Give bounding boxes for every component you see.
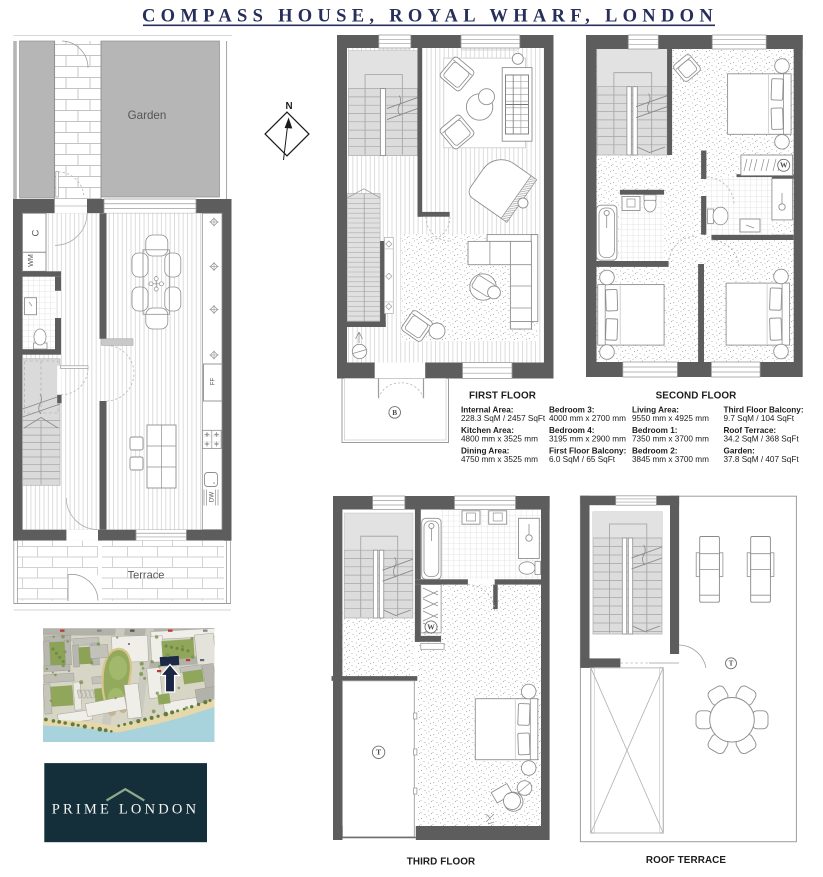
svg-text:First Floor Balcony:: First Floor Balcony:: [549, 446, 626, 455]
svg-text:37.8 SqM / 407 SqFt: 37.8 SqM / 407 SqFt: [724, 455, 800, 464]
svg-text:T: T: [376, 748, 382, 757]
svg-text:4800 mm x 3525 mm: 4800 mm x 3525 mm: [461, 435, 538, 444]
svg-text:N: N: [285, 101, 292, 112]
svg-text:3845 mm x 3700 mm: 3845 mm x 3700 mm: [632, 455, 709, 464]
svg-text:Garden: Garden: [128, 109, 167, 122]
svg-text:7350 mm x 3700 mm: 7350 mm x 3700 mm: [632, 435, 709, 444]
svg-text:C: C: [31, 229, 42, 236]
svg-text:Bedroom 2:: Bedroom 2:: [632, 446, 678, 455]
svg-text:W: W: [427, 622, 435, 631]
svg-text:Internal Area:: Internal Area:: [461, 405, 513, 414]
svg-text:Roof Terrace:: Roof Terrace:: [724, 426, 777, 435]
svg-text:9.7 SqM / 104 SqFt: 9.7 SqM / 104 SqFt: [724, 414, 795, 423]
svg-text:Garden:: Garden:: [724, 446, 755, 455]
svg-text:WM: WM: [26, 254, 35, 267]
svg-text:Living Area:: Living Area:: [632, 405, 679, 414]
svg-text:Terrace: Terrace: [128, 570, 165, 582]
svg-text:THIRD FLOOR: THIRD FLOOR: [407, 856, 476, 867]
svg-text:Kitchen Area:: Kitchen Area:: [461, 426, 514, 435]
svg-text:9550 mm x 4925 mm: 9550 mm x 4925 mm: [632, 414, 709, 423]
svg-text:FF: FF: [211, 378, 217, 386]
svg-text:DW: DW: [209, 492, 216, 502]
svg-text:B: B: [392, 409, 397, 417]
svg-text:3195 mm x 2900 mm: 3195 mm x 2900 mm: [549, 435, 626, 444]
svg-text:COMPASS HOUSE, ROYAL WHARF, LO: COMPASS HOUSE, ROYAL WHARF, LONDON: [142, 7, 718, 27]
svg-text:Bedroom 3:: Bedroom 3:: [549, 405, 595, 414]
svg-text:SECOND FLOOR: SECOND FLOOR: [656, 390, 737, 401]
svg-text:Bedroom 4:: Bedroom 4:: [549, 426, 595, 435]
svg-text:Dining Area:: Dining Area:: [461, 446, 509, 455]
svg-text:FIRST FLOOR: FIRST FLOOR: [469, 390, 536, 401]
svg-text:T: T: [729, 661, 734, 668]
svg-text:6.0 SqM / 65 SqFt: 6.0 SqM / 65 SqFt: [549, 455, 616, 464]
svg-text:W: W: [780, 161, 788, 170]
svg-text:ROOF TERRACE: ROOF TERRACE: [646, 855, 727, 866]
svg-text:4000 mm x 2700 mm: 4000 mm x 2700 mm: [549, 414, 626, 423]
svg-text:34.2 SqM / 368 SqFt: 34.2 SqM / 368 SqFt: [724, 435, 800, 444]
svg-text:228.3 SqM / 2457 SqFt: 228.3 SqM / 2457 SqFt: [461, 414, 546, 423]
svg-text:Bedroom 1:: Bedroom 1:: [632, 426, 678, 435]
svg-text:Third Floor Balcony:: Third Floor Balcony:: [724, 405, 804, 414]
svg-text:4750 mm x 3525 mm: 4750 mm x 3525 mm: [461, 455, 538, 464]
svg-text:PRIME LONDON: PRIME LONDON: [52, 802, 200, 818]
